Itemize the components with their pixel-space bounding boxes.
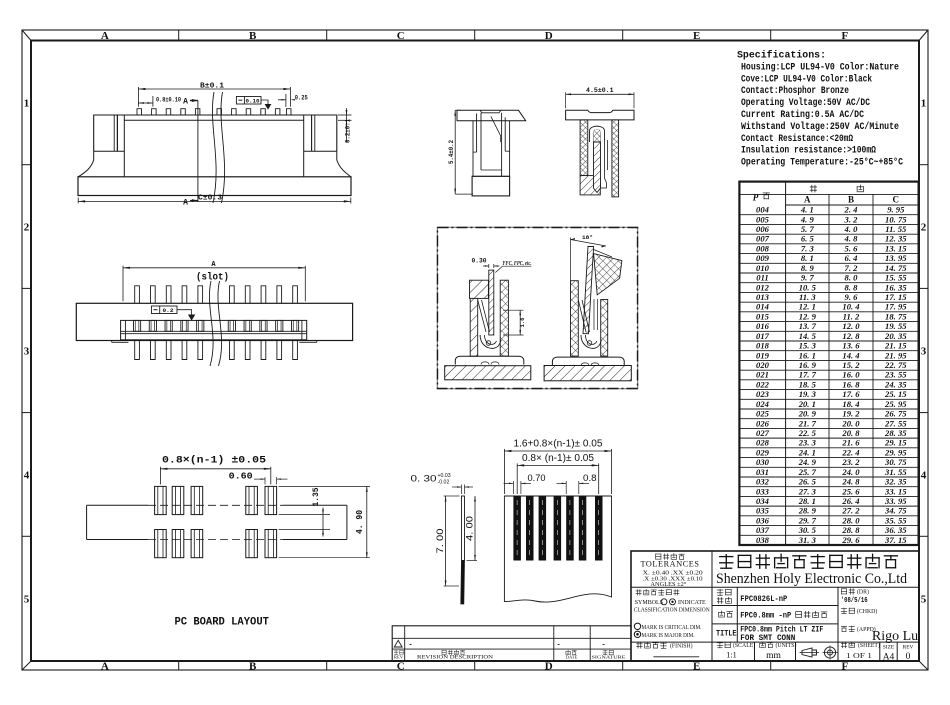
svg-text:1.6: 1.6: [519, 317, 526, 327]
svg-text:10. 75: 10. 75: [885, 214, 907, 224]
svg-text:CLASSIFICATION DIMENSION: CLASSIFICATION DIMENSION: [634, 607, 711, 613]
svg-text:SIZE: SIZE: [883, 644, 895, 650]
svg-text:35. 55: 35. 55: [884, 515, 907, 525]
svg-text:14. 4: 14. 4: [842, 350, 860, 360]
svg-text:007: 007: [756, 234, 770, 244]
svg-text:0.8: 0.8: [583, 473, 597, 483]
svg-text:008: 008: [756, 243, 770, 253]
svg-text:ANGLES ±2°: ANGLES ±2°: [650, 581, 687, 588]
svg-text:0.25: 0.25: [295, 95, 308, 102]
svg-text:1: 1: [24, 97, 30, 109]
svg-text:24. 35: 24. 35: [884, 379, 907, 389]
svg-text:1.6+0.8×(n-1)± 0.05: 1.6+0.8×(n-1)± 0.05: [514, 439, 603, 450]
svg-text:22. 5: 22. 5: [798, 428, 817, 438]
svg-text:033: 033: [756, 486, 770, 496]
svg-text:24. 1: 24. 1: [798, 447, 816, 457]
svg-text:-: -: [602, 642, 606, 650]
svg-text:18°: 18°: [582, 234, 593, 241]
svg-text:28. 9: 28. 9: [798, 506, 817, 516]
svg-text:C: C: [397, 30, 405, 42]
svg-text:(UNITS): (UNITS): [776, 642, 797, 649]
svg-text:036: 036: [756, 515, 770, 525]
svg-text:014: 014: [756, 302, 770, 312]
svg-text:B±0.1: B±0.1: [200, 82, 225, 90]
svg-text:(CHKD): (CHKD): [857, 608, 877, 615]
svg-text:0.8±0.10: 0.8±0.10: [156, 97, 181, 104]
svg-text:8. 1: 8. 1: [801, 253, 814, 263]
svg-text:4. 0: 4. 0: [844, 224, 859, 234]
svg-text:016: 016: [756, 321, 770, 331]
svg-text:Withstand Voltage:250V AC/Minu: Withstand Voltage:250V AC/Minute: [741, 121, 899, 133]
svg-text:011: 011: [756, 273, 768, 283]
svg-text:PC BOARD LAYOUT: PC BOARD LAYOUT: [174, 617, 269, 629]
svg-text:25. 7: 25. 7: [798, 467, 817, 477]
svg-text:4. 90: 4. 90: [355, 510, 365, 534]
svg-text:25. 95: 25. 95: [884, 399, 907, 409]
svg-text:12. 8: 12. 8: [842, 331, 860, 341]
svg-text:034: 034: [756, 496, 770, 506]
svg-text:029: 029: [756, 447, 770, 457]
svg-text:D: D: [545, 661, 553, 673]
svg-text:Contact:Phosphor Bronze: Contact:Phosphor Bronze: [741, 85, 849, 97]
svg-text:038: 038: [756, 535, 770, 545]
svg-text:21. 6: 21. 6: [841, 438, 860, 448]
svg-text:E: E: [693, 30, 700, 42]
svg-text:13. 95: 13. 95: [885, 253, 907, 263]
svg-text:REV: REV: [394, 655, 404, 660]
svg-text:24. 9: 24. 9: [798, 457, 817, 467]
svg-text:7. 2: 7. 2: [845, 263, 859, 273]
svg-text:013: 013: [756, 292, 770, 302]
svg-text:C: C: [397, 661, 405, 673]
svg-text:23. 2: 23. 2: [841, 457, 860, 467]
svg-text:Contact Resistance:<20mΩ: Contact Resistance:<20mΩ: [741, 133, 854, 145]
svg-text:Shenzhen Holy Electronic Co.,L: Shenzhen Holy Electronic Co.,Ltd: [716, 571, 908, 587]
svg-text:+0.03: +0.03: [438, 473, 451, 479]
svg-text:7. 00: 7. 00: [435, 528, 445, 553]
svg-text:010: 010: [756, 263, 770, 273]
svg-text:F: F: [842, 661, 849, 673]
svg-text:0.2±0.1: 0.2±0.1: [345, 119, 352, 143]
svg-text:4.5±0.1: 4.5±0.1: [586, 87, 614, 94]
svg-text:0.60: 0.60: [229, 470, 253, 481]
svg-text:B: B: [249, 661, 257, 673]
svg-text:30. 75: 30. 75: [884, 457, 907, 467]
svg-text:12. 9: 12. 9: [799, 311, 817, 321]
svg-text:009: 009: [756, 253, 770, 263]
svg-text:15. 3: 15. 3: [799, 341, 817, 351]
svg-text:012: 012: [756, 282, 770, 292]
svg-text:34. 75: 34. 75: [884, 506, 907, 516]
svg-text:1.35: 1.35: [311, 488, 321, 507]
svg-text:035: 035: [756, 506, 770, 516]
svg-text:DATE: DATE: [566, 655, 578, 660]
svg-text:29. 15: 29. 15: [884, 438, 907, 448]
svg-text:-0.02: -0.02: [438, 480, 450, 486]
svg-text:(SHEET): (SHEET): [858, 642, 880, 649]
svg-text:024: 024: [756, 399, 770, 409]
svg-text:TITLE: TITLE: [716, 630, 737, 638]
svg-text:17. 7: 17. 7: [799, 370, 817, 380]
svg-text:1:1: 1:1: [726, 651, 736, 660]
svg-text:A: A: [183, 98, 188, 107]
svg-text:31. 55: 31. 55: [884, 467, 907, 477]
svg-text:5.4±0.2: 5.4±0.2: [448, 140, 455, 164]
svg-text:29. 95: 29. 95: [884, 447, 907, 457]
svg-text:12. 0: 12. 0: [842, 321, 860, 331]
svg-text:MARK IS MAJOR DIM.: MARK IS MAJOR DIM.: [642, 632, 695, 639]
svg-text:11. 2: 11. 2: [843, 311, 860, 321]
svg-text:28. 8: 28. 8: [841, 525, 860, 535]
svg-text:Insulation resistance:>100mΩ: Insulation resistance:>100mΩ: [741, 145, 877, 157]
svg-text:A4: A4: [883, 653, 895, 663]
svg-text:006: 006: [756, 224, 770, 234]
svg-text:16. 9: 16. 9: [799, 360, 817, 370]
svg-text:20. 8: 20. 8: [841, 428, 860, 438]
svg-text:19. 55: 19. 55: [885, 321, 907, 331]
svg-text:5. 7: 5. 7: [801, 224, 815, 234]
svg-text:29. 6: 29. 6: [841, 535, 860, 545]
svg-text:E: E: [693, 661, 700, 673]
svg-text:FPC0826L-nP: FPC0826L-nP: [740, 594, 787, 604]
svg-text:19. 3: 19. 3: [799, 389, 817, 399]
svg-text:25. 15: 25. 15: [884, 389, 907, 399]
svg-text:31. 3: 31. 3: [798, 535, 817, 545]
svg-text:023: 023: [756, 389, 770, 399]
svg-text:27. 3: 27. 3: [798, 486, 817, 496]
svg-text:C: C: [893, 194, 900, 204]
svg-text:0.70: 0.70: [528, 473, 546, 483]
svg-text:13. 6: 13. 6: [842, 341, 860, 351]
svg-text:28. 1: 28. 1: [798, 496, 816, 506]
svg-text:4. 9: 4. 9: [800, 214, 815, 224]
svg-text:0.8× (n-1)± 0.05: 0.8× (n-1)± 0.05: [522, 453, 594, 464]
svg-text:SIGNATURE: SIGNATURE: [592, 655, 626, 660]
svg-text:23. 3: 23. 3: [798, 438, 817, 448]
svg-text:21. 95: 21. 95: [884, 350, 907, 360]
svg-text:015: 015: [756, 311, 770, 321]
svg-text:1: 1: [921, 97, 927, 109]
svg-text:A: A: [183, 199, 188, 208]
svg-text:17. 6: 17. 6: [842, 389, 860, 399]
svg-text:27. 55: 27. 55: [884, 418, 907, 428]
svg-text:0: 0: [906, 652, 911, 662]
svg-text:A: A: [804, 194, 811, 204]
svg-text:P: P: [753, 192, 759, 202]
svg-text:5: 5: [24, 594, 30, 606]
svg-text:-: -: [409, 642, 413, 650]
svg-text:(slot): (slot): [196, 272, 229, 284]
svg-text:12. 1: 12. 1: [799, 302, 816, 312]
svg-text:36. 35: 36. 35: [884, 525, 907, 535]
svg-text:20. 9: 20. 9: [798, 409, 817, 419]
svg-text:37. 15: 37. 15: [884, 535, 907, 545]
svg-text:11. 55: 11. 55: [885, 224, 907, 234]
svg-text:019: 019: [756, 350, 770, 360]
svg-text:005: 005: [756, 214, 770, 224]
svg-text:Specifications:: Specifications:: [737, 50, 826, 62]
svg-text:2. 4: 2. 4: [844, 205, 859, 215]
svg-text:20. 0: 20. 0: [841, 418, 860, 428]
svg-text:3. 2: 3. 2: [844, 214, 859, 224]
svg-text:2: 2: [921, 222, 927, 234]
svg-text:Cove:LCP UL94-V0 Color:Black: Cove:LCP UL94-V0 Color:Black: [741, 73, 872, 85]
svg-text:7. 3: 7. 3: [801, 243, 815, 253]
svg-text:025: 025: [756, 409, 770, 419]
svg-text:15. 55: 15. 55: [885, 273, 907, 283]
svg-text:018: 018: [756, 341, 770, 351]
svg-text:F: F: [842, 30, 849, 42]
svg-text:18. 75: 18. 75: [885, 311, 907, 321]
svg-text:0.2: 0.2: [163, 307, 175, 314]
svg-text:4: 4: [921, 470, 927, 482]
svg-text:D: D: [545, 30, 553, 42]
svg-text:Operating Voltage:50V AC/DC: Operating Voltage:50V AC/DC: [741, 97, 871, 109]
svg-text:9. 95: 9. 95: [887, 205, 905, 215]
svg-text:A: A: [101, 661, 109, 673]
svg-text:037: 037: [756, 525, 770, 535]
svg-text:Operating Temperature:-25°C~+8: Operating Temperature:-25°C~+85°C: [741, 157, 904, 169]
svg-text:19. 2: 19. 2: [842, 409, 860, 419]
svg-text:16. 1: 16. 1: [799, 350, 816, 360]
svg-text:mm: mm: [766, 651, 781, 661]
svg-text:9. 6: 9. 6: [845, 292, 859, 302]
svg-text:MARK IS CRITICAL DIM.: MARK IS CRITICAL DIM.: [642, 624, 702, 631]
svg-text:032: 032: [756, 477, 770, 487]
svg-text:030: 030: [756, 457, 770, 467]
svg-text:24. 0: 24. 0: [841, 467, 860, 477]
svg-text:27. 2: 27. 2: [841, 506, 860, 516]
svg-text:17. 95: 17. 95: [885, 302, 907, 312]
svg-text:28. 0: 28. 0: [841, 515, 860, 525]
svg-text:25. 6: 25. 6: [841, 486, 860, 496]
svg-text:REV: REV: [903, 644, 914, 650]
svg-text:REVISION DESCRIPTION: REVISION DESCRIPTION: [417, 656, 494, 661]
svg-text:5: 5: [921, 594, 927, 606]
svg-text:022: 022: [756, 379, 770, 389]
svg-text:10. 5: 10. 5: [799, 282, 817, 292]
svg-text:20. 35: 20. 35: [884, 331, 907, 341]
svg-text:4. 1: 4. 1: [800, 205, 814, 215]
svg-text:A: A: [101, 30, 109, 42]
svg-text:15. 2: 15. 2: [842, 360, 860, 370]
svg-text:026: 026: [756, 418, 770, 428]
svg-text:TOLERANCES: TOLERANCES: [640, 560, 699, 569]
svg-text:3: 3: [24, 346, 30, 358]
svg-text:028: 028: [756, 438, 770, 448]
svg-text:33. 15: 33. 15: [884, 486, 907, 496]
svg-text:2: 2: [24, 222, 30, 234]
svg-text:0. 30: 0. 30: [411, 474, 437, 484]
svg-text:21. 15: 21. 15: [884, 341, 907, 351]
svg-text:9. 7: 9. 7: [801, 273, 815, 283]
svg-text:020: 020: [756, 360, 770, 370]
svg-text:031: 031: [756, 467, 769, 477]
svg-text:13. 15: 13. 15: [885, 243, 907, 253]
svg-text:23. 55: 23. 55: [884, 370, 907, 380]
svg-text:22. 4: 22. 4: [841, 447, 860, 457]
svg-text:Rigo Lu: Rigo Lu: [872, 629, 918, 644]
svg-text:13. 7: 13. 7: [799, 321, 817, 331]
svg-text:021: 021: [756, 370, 769, 380]
svg-text:0.30: 0.30: [472, 257, 487, 264]
svg-text:Housing:LCP UL94-V0 Color:Natu: Housing:LCP UL94-V0 Color:Nature: [741, 61, 899, 73]
svg-text:FOR SMT CONN: FOR SMT CONN: [740, 634, 795, 643]
svg-text:SYMBOLS: SYMBOLS: [635, 600, 663, 606]
svg-text:-: -: [557, 642, 561, 650]
svg-text:B: B: [249, 30, 257, 42]
svg-text:20. 1: 20. 1: [798, 399, 816, 409]
svg-text:14. 75: 14. 75: [885, 263, 907, 273]
svg-text:8. 0: 8. 0: [845, 273, 859, 283]
svg-text:C±0.3: C±0.3: [198, 194, 222, 202]
svg-text:24. 8: 24. 8: [841, 477, 860, 487]
svg-text:26. 4: 26. 4: [841, 496, 860, 506]
svg-text:6. 5: 6. 5: [801, 234, 815, 244]
svg-text:6. 4: 6. 4: [845, 253, 859, 263]
svg-text:017: 017: [756, 331, 770, 341]
svg-text:18. 5: 18. 5: [799, 379, 817, 389]
svg-text:004: 004: [756, 205, 770, 215]
svg-text:0.10: 0.10: [246, 98, 261, 105]
svg-text:5. 6: 5. 6: [845, 243, 859, 253]
svg-text:Current Rating:0.5A AC/DC: Current Rating:0.5A AC/DC: [741, 109, 865, 121]
svg-text:11. 3: 11. 3: [799, 292, 816, 302]
svg-text:17. 15: 17. 15: [885, 292, 907, 302]
svg-text:8. 9: 8. 9: [801, 263, 815, 273]
svg-text:10. 4: 10. 4: [842, 302, 860, 312]
svg-text:(SCALE): (SCALE): [733, 642, 755, 649]
svg-text:4: 4: [24, 470, 30, 482]
svg-text:4. 8: 4. 8: [844, 234, 859, 244]
svg-text:1 OF 1: 1 OF 1: [846, 651, 872, 660]
svg-text:30. 5: 30. 5: [798, 525, 817, 535]
svg-text:21. 7: 21. 7: [798, 418, 817, 428]
svg-text:12. 35: 12. 35: [885, 234, 907, 244]
svg-text:FPC0.8mm -nP: FPC0.8mm -nP: [740, 611, 791, 620]
svg-text:8. 8: 8. 8: [845, 282, 859, 292]
svg-text:28. 35: 28. 35: [884, 428, 907, 438]
svg-text:18. 4: 18. 4: [842, 399, 860, 409]
svg-text:16. 0: 16. 0: [842, 370, 860, 380]
svg-text:16. 8: 16. 8: [842, 379, 860, 389]
svg-text:16. 35: 16. 35: [885, 282, 907, 292]
svg-text:26. 75: 26. 75: [884, 409, 907, 419]
svg-text:22. 75: 22. 75: [884, 360, 907, 370]
svg-text:0.8×(n-1) ±0.05: 0.8×(n-1) ±0.05: [162, 454, 266, 465]
svg-text:(DR): (DR): [857, 588, 869, 595]
svg-text:32. 35: 32. 35: [884, 477, 907, 487]
svg-text:3: 3: [921, 346, 927, 358]
svg-text:14. 5: 14. 5: [799, 331, 817, 341]
svg-text:B: B: [848, 194, 854, 204]
svg-text:26. 5: 26. 5: [798, 477, 817, 487]
svg-text:29. 7: 29. 7: [798, 515, 817, 525]
svg-text:4. 00: 4. 00: [465, 516, 475, 541]
svg-text:33. 95: 33. 95: [884, 496, 907, 506]
svg-text:INDICATE: INDICATE: [678, 600, 706, 606]
svg-text:(FINISH): (FINISH): [670, 643, 693, 650]
svg-text:'08/5/16: '08/5/16: [841, 597, 868, 605]
svg-text:027: 027: [756, 428, 770, 438]
